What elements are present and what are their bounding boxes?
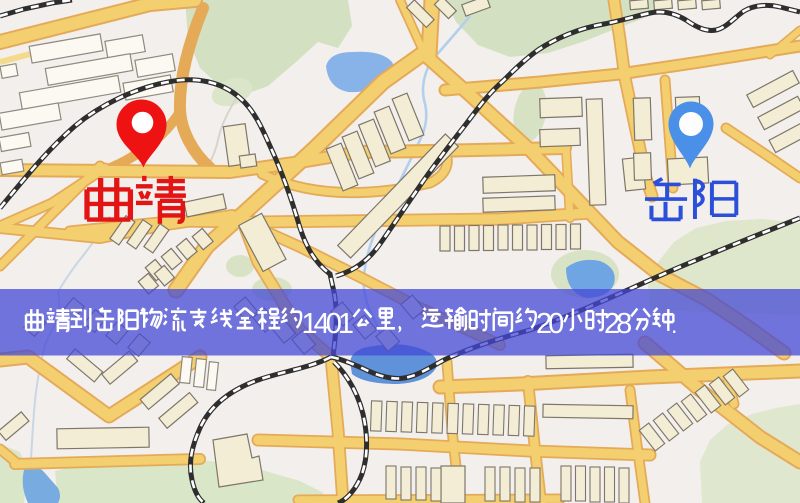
- svg-text:20: 20: [536, 308, 563, 340]
- svg-text:28: 28: [604, 308, 631, 340]
- svg-text:.: .: [671, 312, 677, 338]
- svg-text:1401: 1401: [302, 308, 353, 340]
